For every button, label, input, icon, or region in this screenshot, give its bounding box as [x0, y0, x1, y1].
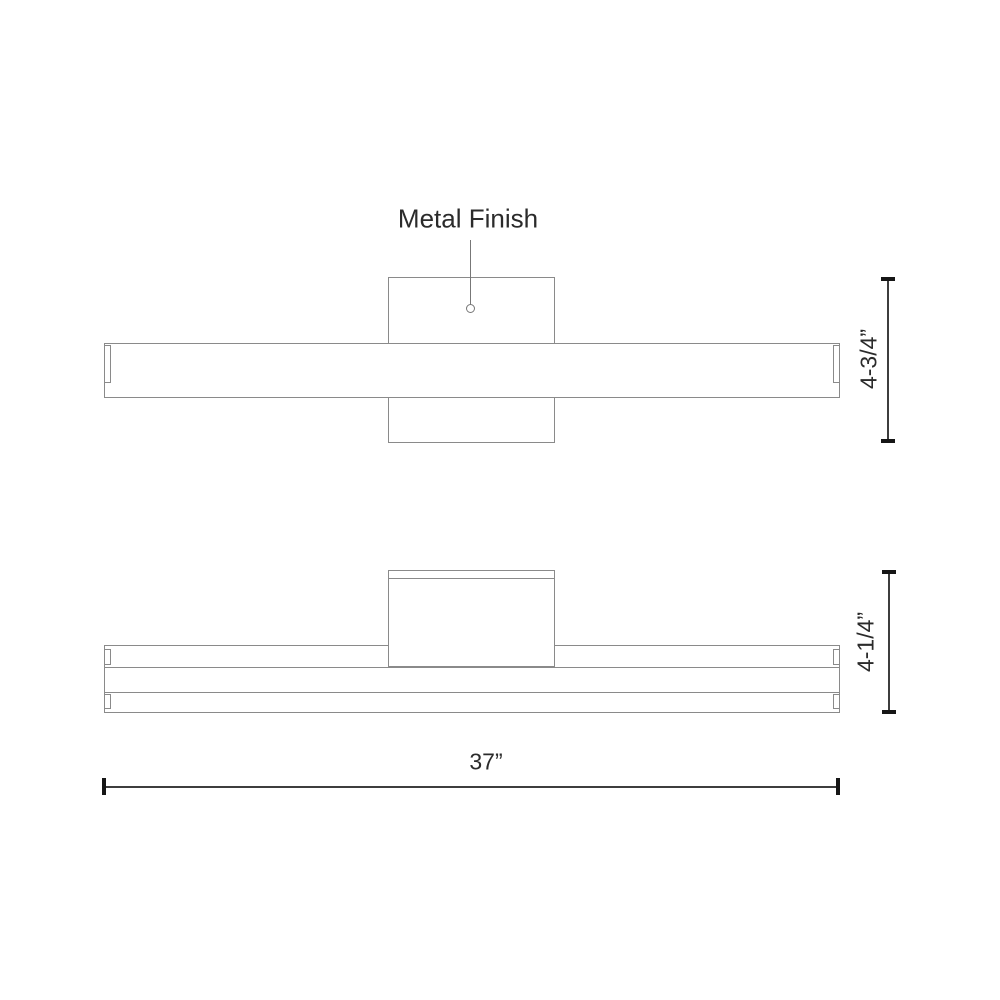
- bar-seam-line-upper: [104, 667, 840, 668]
- right-tab-upper: [833, 649, 840, 665]
- dimension-tick-bottom: [882, 710, 896, 714]
- dimension-tick-top: [881, 277, 895, 281]
- dimension-tick-bottom: [881, 439, 895, 443]
- dimension-tick-left: [102, 778, 106, 795]
- mounting-box-plan: [388, 570, 555, 667]
- plan-depth-value: 4-1/4”: [853, 612, 880, 672]
- light-bar-front: [104, 343, 840, 398]
- left-endcap-front: [104, 345, 111, 383]
- dimension-line: [888, 572, 890, 712]
- overall-width-value: 37”: [469, 749, 502, 776]
- metal-finish-label: Metal Finish: [398, 204, 538, 235]
- right-tab-lower: [833, 694, 840, 709]
- left-tab-lower: [104, 694, 111, 709]
- bar-seam-line-lower: [104, 692, 840, 693]
- leader-dot: [466, 304, 475, 313]
- left-tab-upper: [104, 649, 111, 665]
- dimension-line: [104, 786, 838, 788]
- dimension-tick-top: [882, 570, 896, 574]
- front-height-value: 4-3/4”: [856, 329, 883, 389]
- dimension-line: [887, 279, 889, 442]
- right-endcap-front: [833, 345, 840, 383]
- mounting-box-top-seam: [388, 578, 555, 579]
- leader-line: [470, 240, 471, 305]
- dimension-tick-right: [836, 778, 840, 795]
- fixture-dimension-diagram: Metal Finish 4-3/4” 4-1/4” 37”: [0, 0, 1000, 1000]
